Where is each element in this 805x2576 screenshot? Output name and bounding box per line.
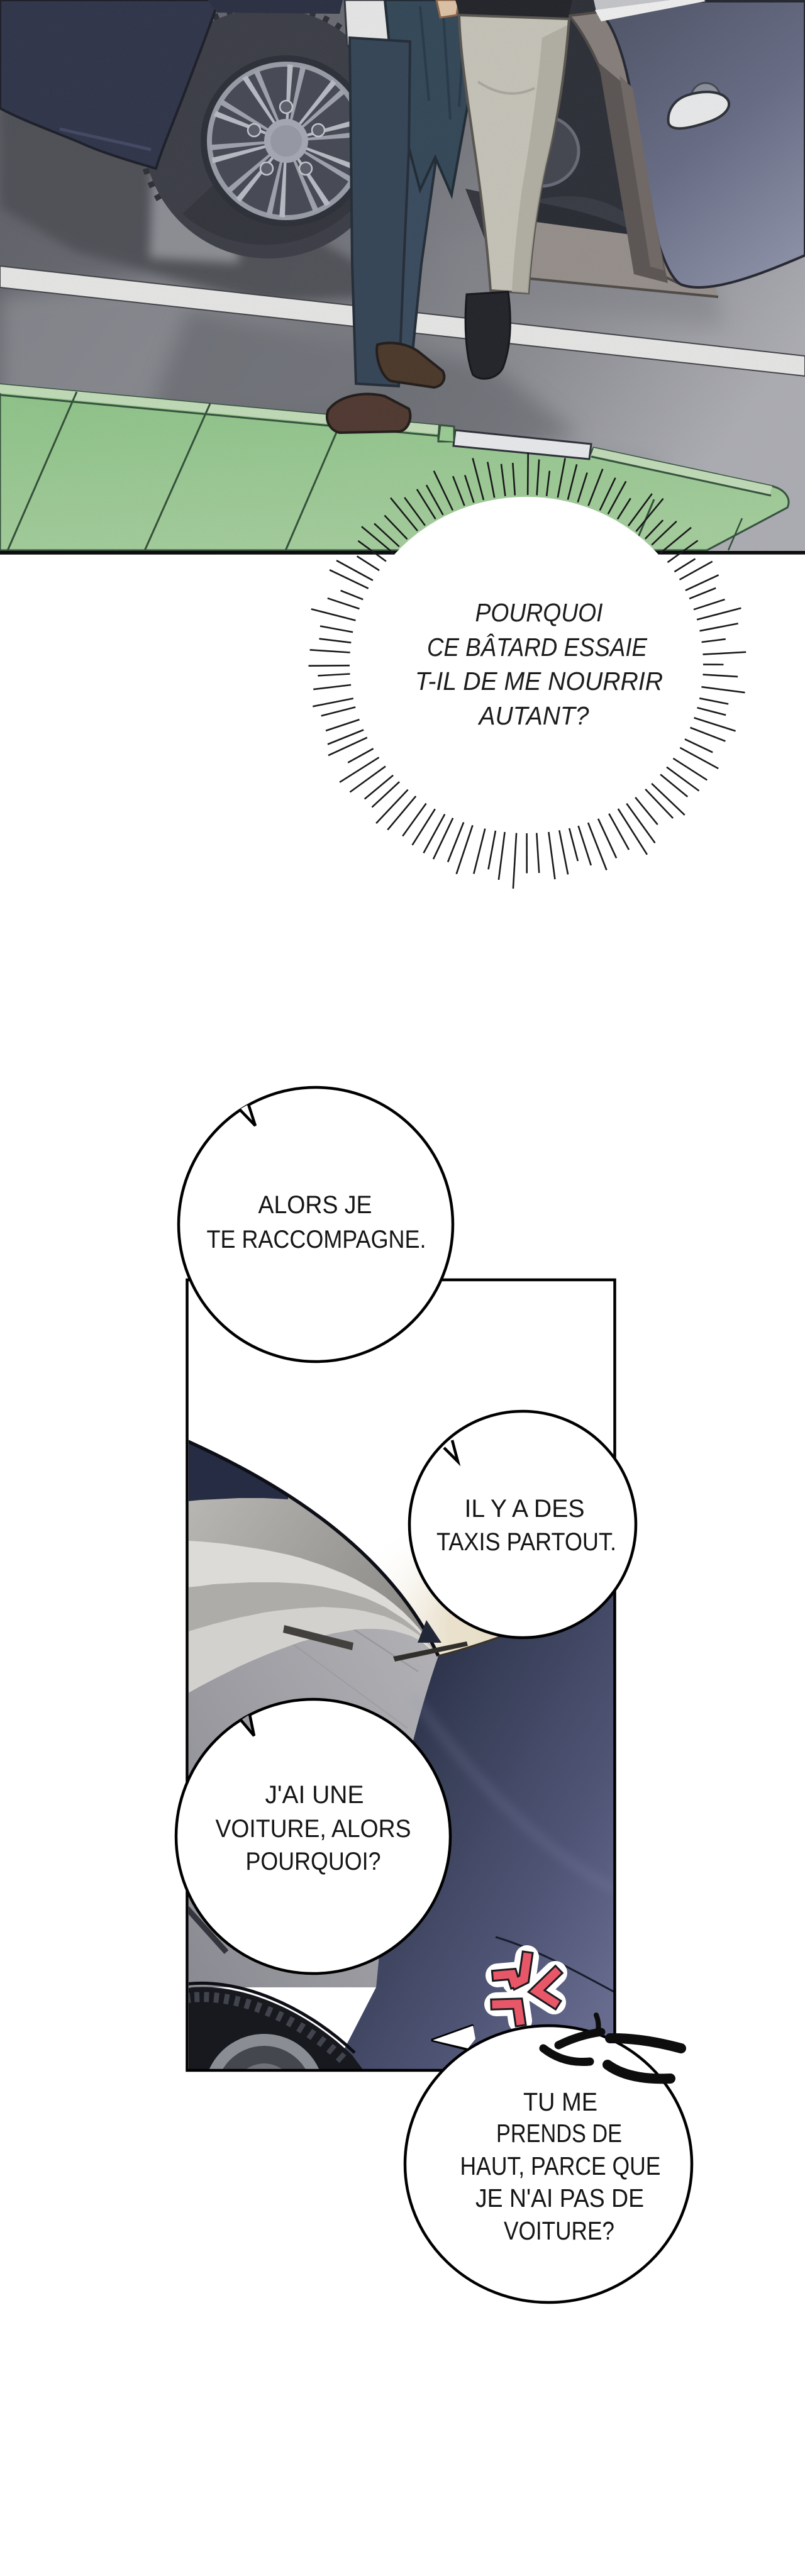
svg-text:CE BÂTARD ESSAIE: CE BÂTARD ESSAIE [427, 633, 648, 662]
svg-text:JE N'AI PAS DE: JE N'AI PAS DE [475, 2184, 644, 2212]
svg-text:TAXIS PARTOUT.: TAXIS PARTOUT. [436, 1528, 616, 1556]
svg-text:AUTANT?: AUTANT? [477, 701, 589, 730]
svg-text:POURQUOI: POURQUOI [475, 598, 603, 627]
svg-text:POURQUOI?: POURQUOI? [246, 1848, 381, 1875]
svg-text:J'AI UNE: J'AI UNE [265, 1781, 364, 1809]
svg-text:TE RACCOMPAGNE.: TE RACCOMPAGNE. [207, 1226, 426, 1253]
svg-text:VOITURE, ALORS: VOITURE, ALORS [216, 1815, 411, 1843]
svg-text:T-IL DE ME NOURRIR: T-IL DE ME NOURRIR [415, 667, 663, 696]
svg-text:IL Y A DES: IL Y A DES [465, 1495, 585, 1523]
svg-text:TU ME: TU ME [523, 2087, 597, 2116]
svg-text:HAUT, PARCE QUE: HAUT, PARCE QUE [460, 2151, 661, 2180]
svg-text:VOITURE?: VOITURE? [504, 2216, 614, 2245]
svg-text:PRENDS DE: PRENDS DE [496, 2119, 622, 2148]
svg-text:ALORS JE: ALORS JE [258, 1191, 372, 1219]
